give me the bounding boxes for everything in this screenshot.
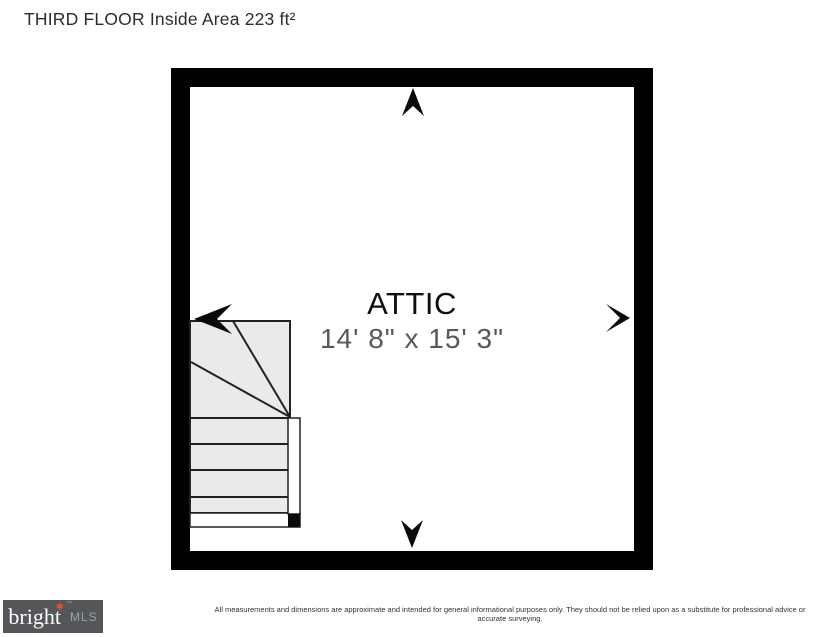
page-title: THIRD FLOOR Inside Area 223 ft² (24, 9, 296, 30)
room-dimensions: 14' 8" x 15' 3" (190, 324, 634, 353)
logo-star-icon: ✱ (56, 603, 64, 613)
logo-suffix-text: MLS (70, 610, 98, 624)
logo-brand-text: bright ✱ ™ (8, 606, 61, 628)
trademark-symbol: ™ (66, 601, 72, 607)
room-name: ATTIC (190, 288, 634, 321)
room-label: ATTIC 14' 8" x 15' 3" (190, 288, 634, 353)
brand-logo: bright ✱ ™ MLS (3, 600, 103, 633)
footer-disclaimer: All measurements and dimensions are appr… (200, 605, 820, 623)
